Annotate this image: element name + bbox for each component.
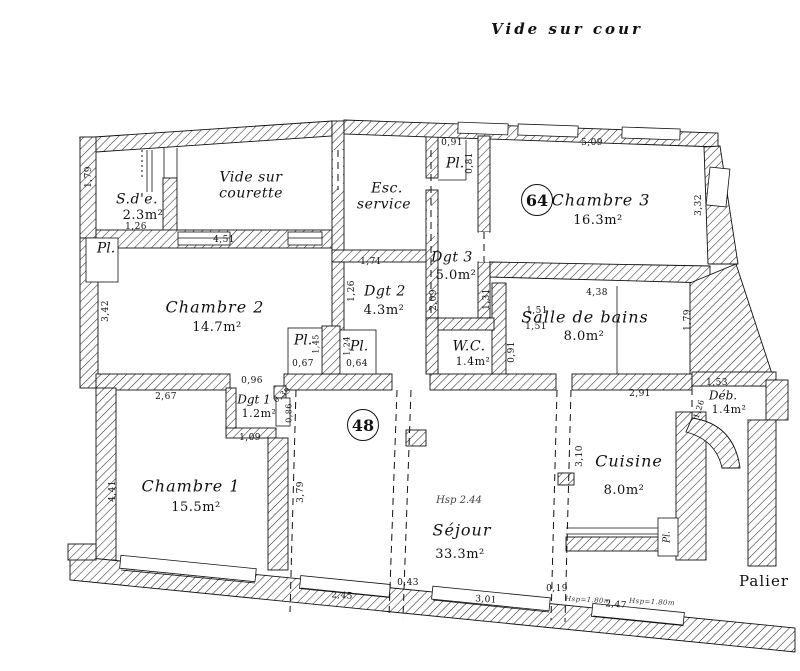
dimension-label: 0,96: [241, 376, 263, 386]
dimension-label: 1,51: [526, 306, 548, 316]
dimension-label: 5,09: [581, 138, 603, 148]
room-sejour-name: Séjour: [433, 523, 492, 540]
wall-chambre1-left: [96, 388, 116, 560]
unit-marker-64: 64: [521, 184, 553, 216]
room-cuisine-area: 8.0m²: [604, 484, 645, 498]
closet-pl-top: Pl.: [446, 157, 464, 172]
room-chambre2-area: 14.7m²: [192, 321, 241, 335]
room-esc-name2: service: [357, 198, 411, 213]
dimension-label: 3,10: [575, 445, 585, 467]
dimension-label: 3,42: [101, 300, 111, 322]
dimension-label: 0,86: [285, 403, 294, 422]
room-dgt2-name: Dgt 2: [364, 285, 406, 300]
dimension-label: 1,26: [125, 222, 147, 232]
dimension-label: 0,43: [397, 578, 419, 588]
window-courette-2: [288, 232, 322, 245]
pier-closets: [322, 326, 340, 374]
dimension-label: 1,31: [482, 288, 492, 310]
room-wc-name: W.C.: [452, 340, 485, 355]
wall-right-mass: [690, 264, 776, 386]
dimension-label: 3,79: [296, 481, 306, 503]
dimension-label: 0,64: [346, 359, 368, 369]
label-palier: Palier: [739, 574, 789, 590]
floorplan-page: Vide sur cour Palier 64 48 S.d'e. 2.3m² …: [0, 0, 800, 671]
room-chambre1-name: Chambre 1: [142, 479, 241, 496]
dimension-label: 1,79: [84, 166, 94, 188]
closet-pl-right: Pl.: [350, 340, 368, 355]
room-sejour-hsp-note: Hsp 2.44: [436, 496, 482, 507]
dimension-label: 2,67: [155, 392, 177, 402]
dimension-label: 4,38: [586, 288, 608, 298]
wall-main-d: [572, 374, 692, 390]
dimension-label: 1,26: [347, 280, 357, 302]
wall-pier-sde: [163, 178, 177, 232]
wall-main-c: [430, 374, 556, 390]
dimension-label: 1,24: [343, 336, 352, 355]
wall-wc-left: [426, 318, 438, 374]
room-chambre3-area: 16.3m²: [573, 214, 622, 228]
dimension-label: 2,91: [629, 389, 651, 399]
wall-esc-left: [332, 121, 344, 262]
pier-sejour-cuisine: [558, 473, 574, 485]
dimension-label: 1,51: [525, 322, 547, 332]
room-cuisine-name: Cuisine: [595, 454, 663, 471]
wall-chambre1-sejour: [268, 438, 288, 570]
room-dgt1-name: Dgt 1: [237, 394, 271, 407]
wall-right-lower: [748, 420, 776, 566]
dimension-label: 1,45: [312, 334, 321, 353]
room-courette-name1: Vide sur: [220, 171, 283, 186]
window-top-1: [458, 122, 508, 135]
room-chambre3-name: Chambre 3: [552, 193, 651, 210]
door-gap-dgt2: [427, 206, 437, 236]
dimension-label: 1,53: [706, 378, 728, 388]
dimension-label: 2,09: [429, 289, 439, 311]
wall-cuisine-bottom: [566, 537, 660, 551]
room-dgt1-area: 1.2m²: [242, 408, 277, 420]
wall-chambre3-bottom: [490, 262, 710, 283]
dimension-label: 3,01: [475, 594, 497, 605]
wall-chambre3-left: [478, 136, 490, 232]
room-esc-name1: Esc.: [371, 182, 403, 197]
dimension-label: 1,71: [360, 257, 382, 267]
dimension-label: 0,19: [546, 584, 568, 594]
room-dgt3-area: 5.0m²: [436, 269, 477, 283]
room-deb-area: 1.4m²: [712, 404, 747, 416]
dimension-label: 0,91: [441, 138, 463, 148]
closet-pl-left: Pl.: [294, 334, 312, 349]
room-deb-name: Déb.: [709, 390, 737, 403]
room-sdb-area: 8.0m²: [564, 330, 605, 344]
room-sejour-area: 33.3m²: [435, 548, 484, 562]
room-chambre2-name: Chambre 2: [166, 300, 265, 317]
wall-top-left: [80, 121, 332, 152]
dimension-label: 3,32: [694, 194, 704, 216]
room-sde-name: S.d'e.: [116, 193, 158, 208]
floorplan-drawing: [0, 0, 800, 671]
wall-dgt1-left: [226, 388, 236, 430]
dimension-label: 1,09: [239, 433, 261, 443]
dimension-label: 2,45: [331, 590, 353, 601]
window-top-2: [518, 124, 578, 137]
window-right: [706, 167, 730, 207]
window-top-3: [622, 127, 680, 140]
room-chambre1-area: 15.5m²: [171, 501, 220, 515]
dimension-label: 0,91: [507, 341, 517, 363]
room-sde-area: 2.3m²: [123, 209, 164, 223]
room-dgt2-area: 4.3m²: [364, 304, 405, 318]
wall-bottom-left-step: [68, 544, 96, 560]
closet-pl-cuisine: Pl.: [663, 531, 672, 543]
unit-marker-48: 48: [347, 409, 379, 441]
dimension-label: 4,41: [108, 480, 118, 502]
dimension-label: 0,67: [292, 359, 314, 369]
room-wc-area: 1.4m²: [456, 356, 491, 368]
wall-main-b: [284, 374, 392, 390]
label-vide-sur-cour: Vide sur cour: [491, 22, 643, 38]
wall-deb-top: [692, 372, 776, 386]
room-dgt3-name: Dgt 3: [431, 251, 473, 266]
dimension-label: 0,81: [465, 152, 475, 174]
dimension-label: 4,51: [213, 235, 235, 245]
closet-pl-wall-left: Pl.: [97, 242, 115, 257]
room-courette-name2: courette: [219, 187, 283, 202]
wall-deb-right: [766, 380, 788, 420]
dimension-label: 1,79: [683, 309, 693, 331]
wall-pl-top-left: [426, 136, 438, 178]
